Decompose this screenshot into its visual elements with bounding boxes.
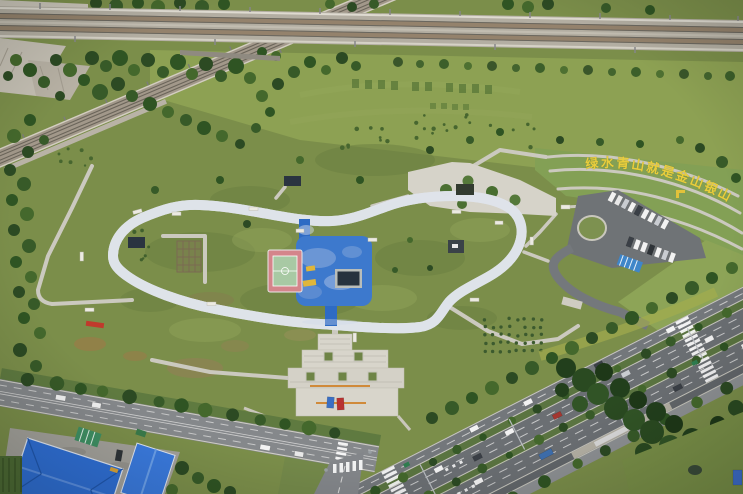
aerial-photo-canvas: 绿水青山就是金山银山 [0, 0, 743, 494]
photo-vignette [0, 0, 743, 494]
aerial-photo: 绿水青山就是金山银山 [0, 0, 743, 494]
